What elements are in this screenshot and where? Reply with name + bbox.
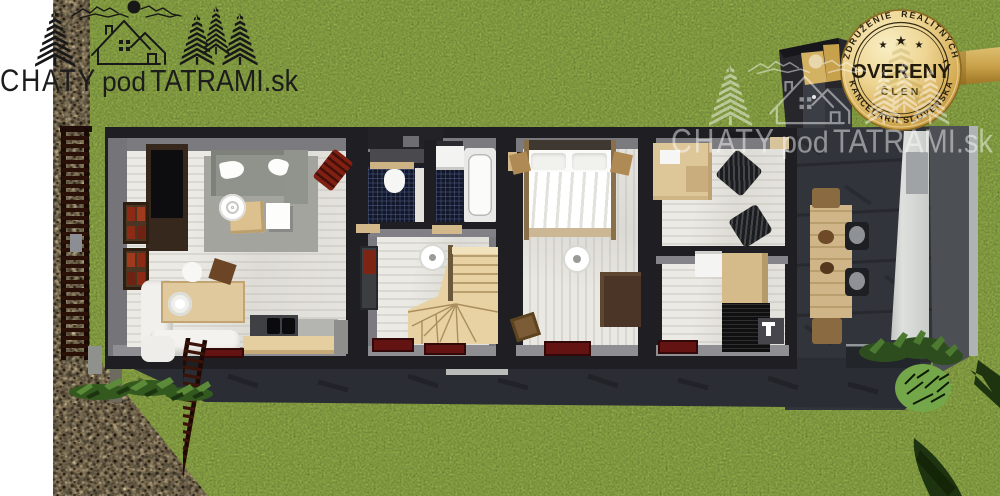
svg-text:★: ★ bbox=[895, 33, 907, 48]
svg-text:★: ★ bbox=[915, 40, 924, 51]
svg-text:★: ★ bbox=[879, 40, 888, 51]
